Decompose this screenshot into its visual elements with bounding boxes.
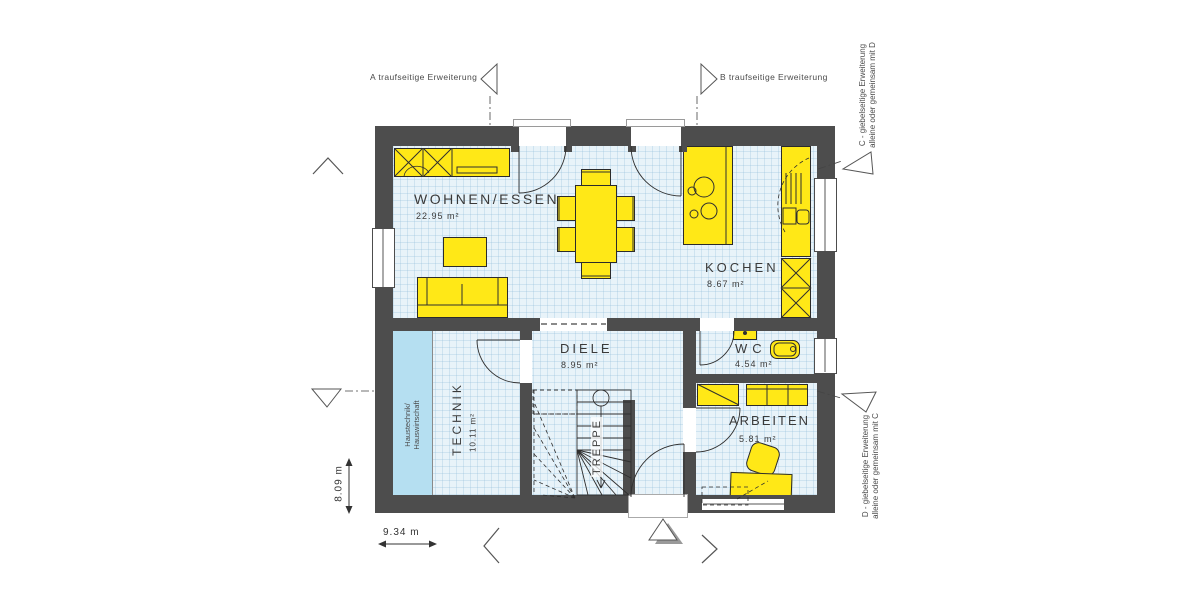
haustechnik-line1: Haustechnik/ <box>403 379 412 471</box>
chevron-left-icon <box>484 528 499 563</box>
extension-label-b: B traufseitige Erweiterung <box>720 72 828 82</box>
room-label-wc: WC <box>735 341 767 356</box>
floor-plan-canvas: A traufseitige Erweiterung B traufseitig… <box>0 0 1200 600</box>
haustechnik-zone-label: Haustechnik/ Hauswirtschaft <box>403 379 421 471</box>
room-label-technik: TECHNIK <box>450 379 464 459</box>
dimension-depth: 8.09 m <box>334 462 345 506</box>
room-area-diele: 8.95 m² <box>561 360 599 370</box>
extension-label-a: A traufseitige Erweiterung <box>370 72 477 82</box>
haustechnik-line2: Hauswirtschaft <box>412 379 421 471</box>
marker-west-triangle <box>312 389 341 407</box>
dimension-width: 9.34 m <box>383 527 420 538</box>
extension-label-d: D - giebelseitige Erweiterung alleine od… <box>861 406 881 526</box>
room-area-wohnen: 22.95 m² <box>416 211 460 221</box>
staircase-detail <box>533 390 631 498</box>
chevron-right-icon <box>702 535 717 563</box>
room-label-treppe: TREPPE <box>591 417 603 477</box>
marker-a-triangle <box>481 64 497 94</box>
room-area-technik: 10.11 m² <box>469 408 478 458</box>
extension-label-c-line1: C - giebelseitige Erweiterung <box>858 35 868 155</box>
extension-label-d-line2: alleine oder gemeinsam mit C <box>871 406 881 526</box>
plan-linework <box>0 0 1200 600</box>
room-area-kochen: 8.67 m² <box>707 279 745 289</box>
marker-b-triangle <box>701 64 717 94</box>
room-area-arbeiten: 5.81 m² <box>739 434 777 444</box>
room-area-wc: 4.54 m² <box>735 359 773 369</box>
extension-label-d-line1: D - giebelseitige Erweiterung <box>861 406 871 526</box>
room-label-kochen: KOCHEN <box>705 260 779 275</box>
entrance-marker <box>649 519 677 540</box>
extension-label-c-line2: alleine oder gemeinsam mit D <box>868 35 878 155</box>
marker-c-triangle <box>843 152 873 174</box>
extension-label-c: C - giebelseitige Erweiterung alleine od… <box>858 35 878 155</box>
room-label-diele: DIELE <box>560 341 613 356</box>
section-markers <box>312 64 876 563</box>
room-label-arbeiten: ARBEITEN <box>729 413 810 428</box>
chevron-up-icon <box>313 158 343 174</box>
room-label-wohnen: WOHNEN/ESSEN <box>414 191 559 207</box>
